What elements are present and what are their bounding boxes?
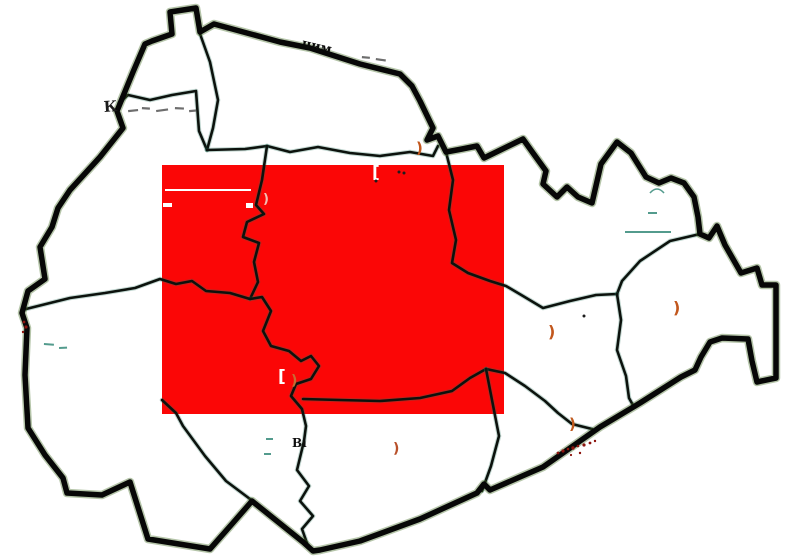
erased-label-mark — [165, 189, 251, 191]
erased-label-arc: ) — [393, 441, 399, 457]
erased-label-dash-teal — [648, 212, 657, 214]
erased-label-speckle — [571, 446, 574, 449]
erased-label-dash-teal — [59, 347, 67, 349]
erased-label-arc: ) — [291, 373, 297, 389]
erased-label-dot — [403, 172, 406, 175]
erased-label-speckle — [594, 440, 596, 442]
erased-label-speckle — [577, 445, 580, 448]
erased-label-speckle — [24, 325, 27, 328]
erased-label-dot — [375, 180, 378, 183]
erased-label-mark — [246, 203, 253, 208]
erased-label-arc: ) — [416, 139, 423, 157]
erased-label-speckle — [570, 454, 572, 456]
erased-label-speckle — [557, 452, 560, 455]
erased-label-dash-teal — [266, 438, 273, 440]
erased-label-speckle — [579, 452, 581, 454]
erased-label-dash-teal — [625, 231, 671, 233]
erased-label-speckle — [23, 321, 26, 324]
erased-label-dot — [583, 315, 586, 318]
erased-label-speckle — [582, 443, 585, 446]
erased-label-mark — [163, 203, 172, 207]
map-canvas: )))))))[[чимКВі — [0, 0, 800, 560]
erased-label-bracket: [ — [278, 367, 286, 387]
erased-label-dot — [398, 171, 401, 174]
erased-label-speckle — [567, 448, 570, 451]
erased-label-dash — [175, 107, 184, 110]
erased-label-arc: ) — [263, 192, 269, 207]
erased-label-speckle — [561, 449, 564, 452]
erased-label-arc: ) — [548, 322, 555, 341]
erased-label-arc: ) — [569, 415, 576, 433]
district-map-svg: )))))))[[чимКВі — [0, 0, 800, 560]
erased-label-dash — [376, 58, 386, 62]
erased-label-arc: ) — [673, 298, 680, 317]
erased-label-speckle — [589, 442, 592, 445]
erased-label-speckle — [22, 331, 24, 333]
erased-label-dash — [362, 56, 370, 59]
map-label: Ві — [292, 436, 307, 450]
map-label: К — [103, 97, 118, 116]
erased-label-dash-teal — [264, 453, 271, 455]
